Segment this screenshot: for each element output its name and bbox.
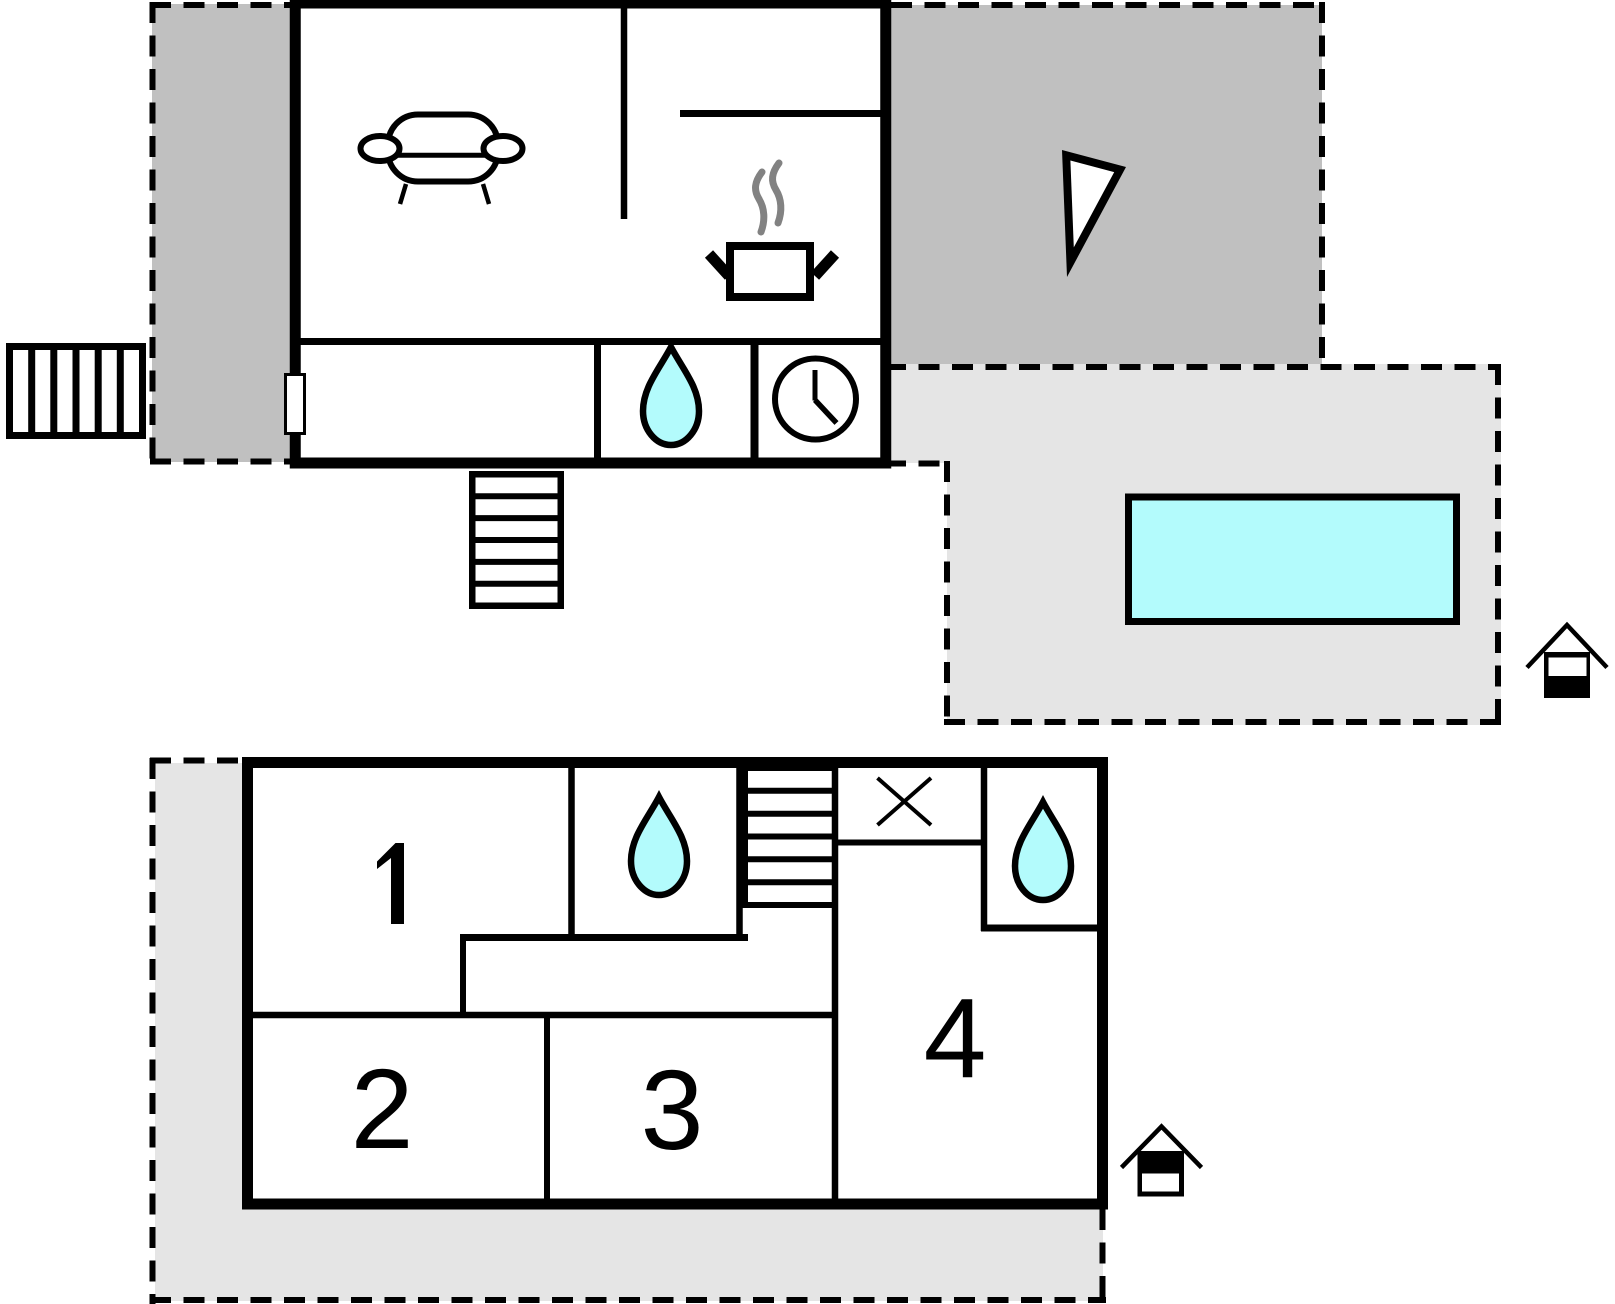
svg-text:4: 4 bbox=[924, 975, 987, 1101]
svg-text:3: 3 bbox=[641, 1047, 704, 1173]
svg-text:2: 2 bbox=[351, 1046, 414, 1172]
